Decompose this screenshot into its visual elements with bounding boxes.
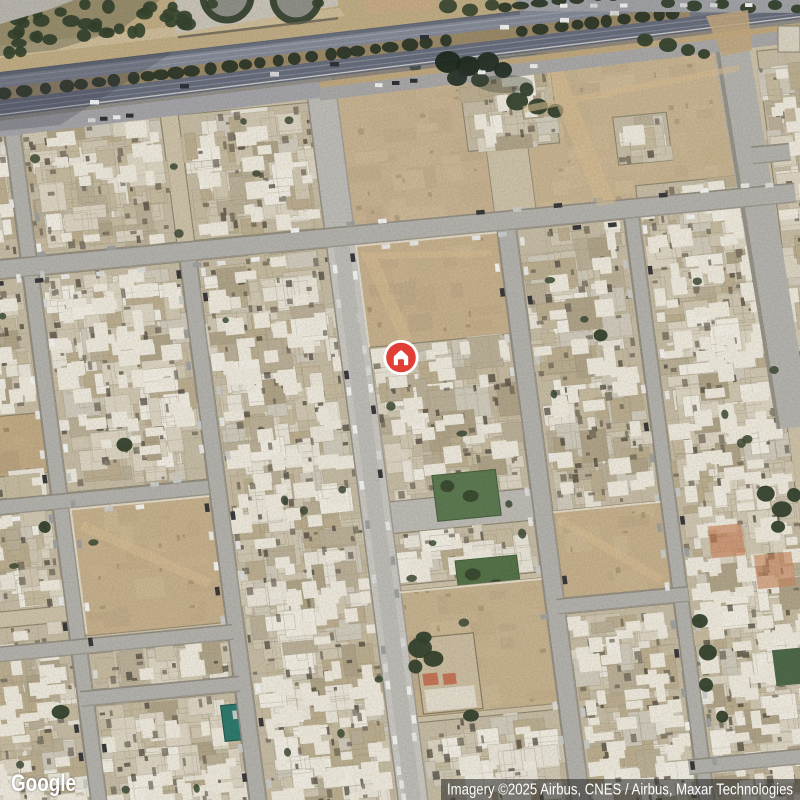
svg-text:Imagery ©2025 Airbus, CNES / A: Imagery ©2025 Airbus, CNES / Airbus, Max… <box>447 782 793 799</box>
svg-text:Google: Google <box>11 770 76 797</box>
